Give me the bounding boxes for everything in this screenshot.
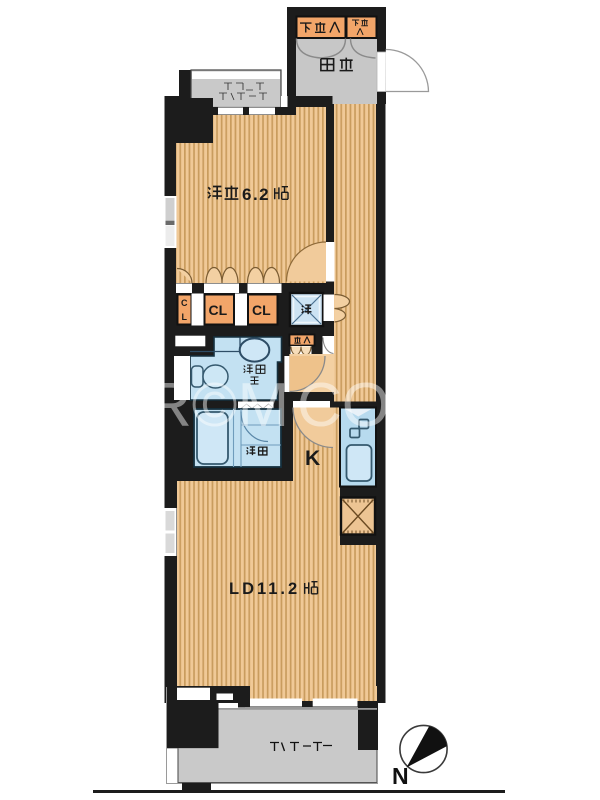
svg-text:R©M: R©M [147, 371, 289, 440]
svg-text:N: N [392, 763, 409, 789]
svg-text:C: C [181, 298, 188, 308]
svg-text:LD11.2: LD11.2 [229, 580, 300, 598]
svg-text:L: L [182, 312, 188, 322]
svg-text:CL: CL [209, 302, 228, 318]
svg-text:6.2: 6.2 [242, 185, 270, 204]
svg-text:CO: CO [297, 371, 390, 440]
svg-text:L: L [389, 371, 423, 440]
svg-text:K: K [305, 447, 320, 470]
svg-text:CL: CL [252, 302, 271, 318]
